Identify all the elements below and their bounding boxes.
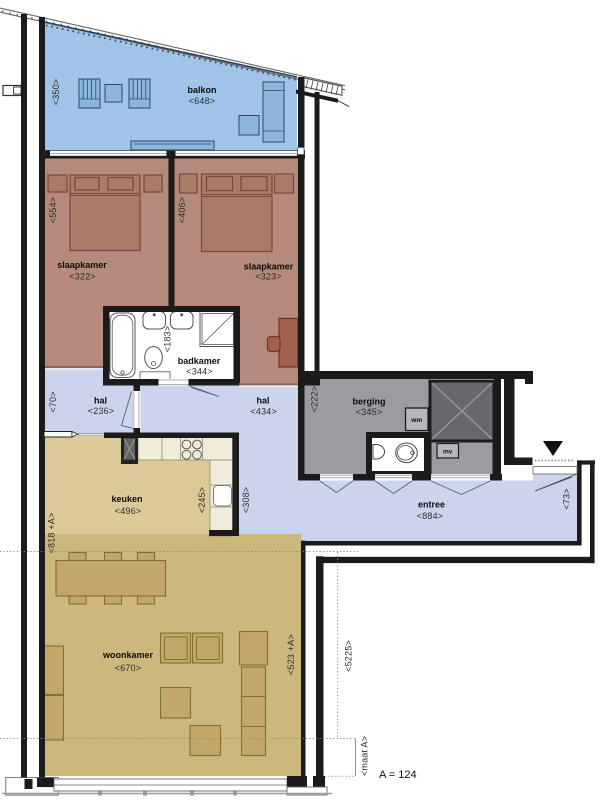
- svg-text:A = 124: A = 124: [379, 769, 417, 781]
- svg-text:badkamer: badkamer: [178, 356, 221, 366]
- svg-text:balkon: balkon: [187, 85, 216, 95]
- svg-text:<406>: <406>: [177, 197, 187, 224]
- svg-text:<670>: <670>: [115, 663, 142, 673]
- svg-text:<496>: <496>: [115, 506, 142, 516]
- svg-text:mv: mv: [443, 449, 453, 456]
- svg-text:hal: hal: [256, 396, 269, 406]
- svg-text:wm: wm: [410, 417, 422, 424]
- svg-text:<73>: <73>: [562, 488, 572, 509]
- svg-text:<884>: <884>: [417, 511, 444, 521]
- svg-text:<523 +A>: <523 +A>: [286, 634, 296, 675]
- svg-text:<434>: <434>: [250, 407, 277, 417]
- svg-text:<648>: <648>: [189, 96, 216, 106]
- svg-text:entree: entree: [418, 499, 445, 509]
- svg-text:<818 +A>: <818 +A>: [47, 513, 57, 554]
- svg-text:slaapkamer: slaapkamer: [244, 262, 294, 272]
- svg-text:<222>: <222>: [310, 386, 320, 413]
- svg-text:<322>: <322>: [69, 272, 96, 282]
- svg-text:<5225>: <5225>: [344, 640, 354, 672]
- svg-text:<245>: <245>: [197, 487, 207, 514]
- svg-text:keuken: keuken: [111, 494, 142, 504]
- svg-text:<308>: <308>: [241, 487, 251, 514]
- svg-text:<236>: <236>: [88, 406, 115, 416]
- svg-text:hal: hal: [94, 396, 107, 406]
- svg-text:woonkamer: woonkamer: [102, 650, 154, 660]
- svg-text:<345>: <345>: [356, 407, 383, 417]
- svg-text:berging: berging: [353, 397, 386, 407]
- svg-text:<70>: <70>: [48, 391, 58, 412]
- svg-text:<350>: <350>: [51, 79, 61, 106]
- svg-text:<323>: <323>: [255, 272, 282, 282]
- svg-text:<maat A>: <maat A>: [360, 736, 370, 776]
- svg-text:<554>: <554>: [48, 197, 58, 224]
- svg-text:<344>: <344>: [186, 367, 213, 377]
- svg-text:<183>: <183>: [163, 326, 173, 353]
- svg-text:slaapkamer: slaapkamer: [57, 260, 107, 270]
